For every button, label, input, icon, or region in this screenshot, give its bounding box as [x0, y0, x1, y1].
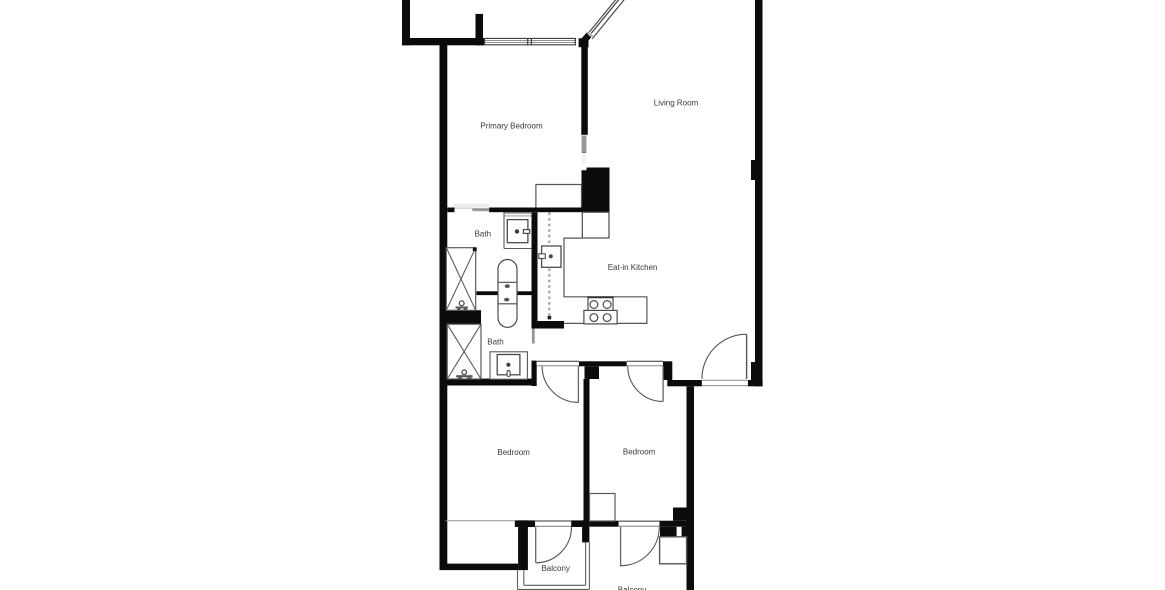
svg-text:Primary Bedroom: Primary Bedroom: [480, 121, 543, 130]
svg-text:Balcony: Balcony: [618, 586, 646, 590]
svg-text:Eat-in Kitchen: Eat-in Kitchen: [608, 263, 658, 272]
svg-text:Living Room: Living Room: [654, 99, 699, 108]
svg-text:Bedroom: Bedroom: [623, 448, 656, 457]
svg-text:Bath: Bath: [487, 337, 503, 346]
svg-text:Balcony: Balcony: [541, 564, 569, 573]
svg-text:Bedroom: Bedroom: [497, 448, 530, 457]
svg-text:Bath: Bath: [475, 230, 491, 239]
